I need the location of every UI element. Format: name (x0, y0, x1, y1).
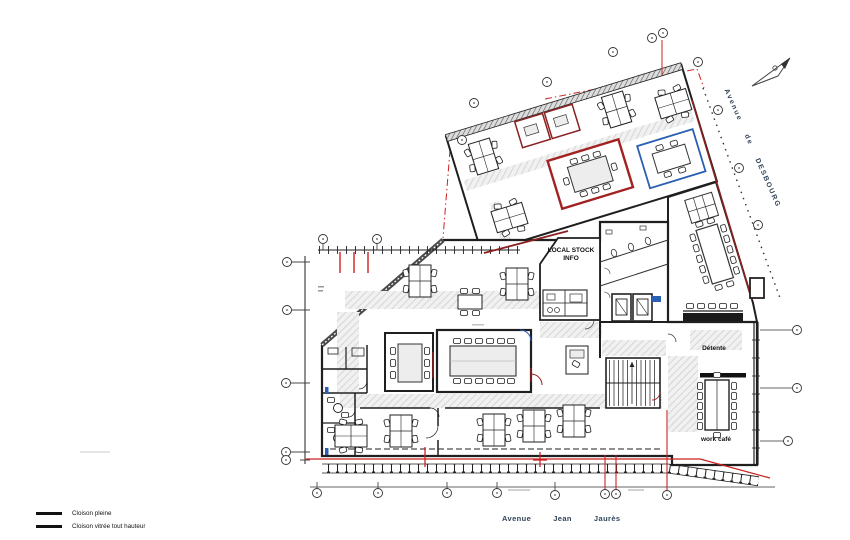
meeting-room-a (385, 333, 433, 391)
cloison-pleine-swatch (36, 512, 62, 516)
north-arrow-icon (752, 58, 790, 86)
conference-room (437, 330, 542, 392)
work-cafe-label: work café (689, 436, 743, 443)
detente-label: Détente (688, 345, 740, 352)
legend: Cloison pleine Cloison vitrée tout haute… (36, 510, 146, 530)
facade-mullions (322, 464, 759, 486)
local-stock-label: LOCAL STOCK INFO (539, 247, 603, 263)
legend-label: Cloison vitrée tout hauteur (72, 523, 146, 530)
legend-item-cloison-vitree: Cloison vitrée tout hauteur (36, 523, 146, 530)
legend-item-cloison-pleine: Cloison pleine (36, 510, 146, 517)
floorplan-page: LOCAL STOCK INFO Détente work café Avenu… (0, 0, 850, 540)
main-stairs (606, 358, 660, 408)
legend-label: Cloison pleine (72, 510, 112, 517)
floor-plan-drawing (0, 0, 850, 540)
cloison-vitree-swatch (36, 525, 62, 528)
street-name-jean-jaures: Avenue Jean Jaurès (502, 514, 621, 523)
